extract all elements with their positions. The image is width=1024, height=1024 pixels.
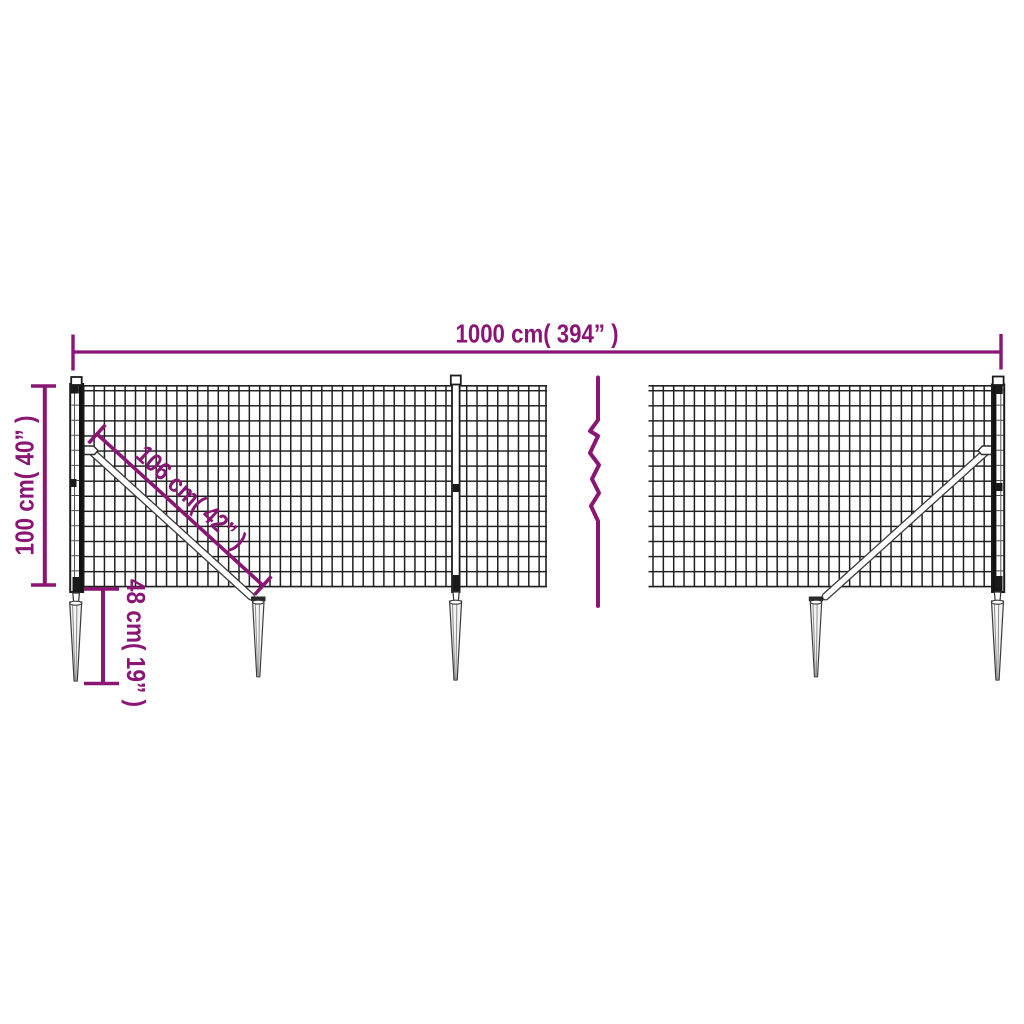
- svg-text:48 cm( 19” ): 48 cm( 19” ): [121, 579, 151, 707]
- svg-text:100 cm( 40” ): 100 cm( 40” ): [10, 416, 40, 556]
- svg-text:1000 cm( 394” ): 1000 cm( 394” ): [456, 319, 619, 349]
